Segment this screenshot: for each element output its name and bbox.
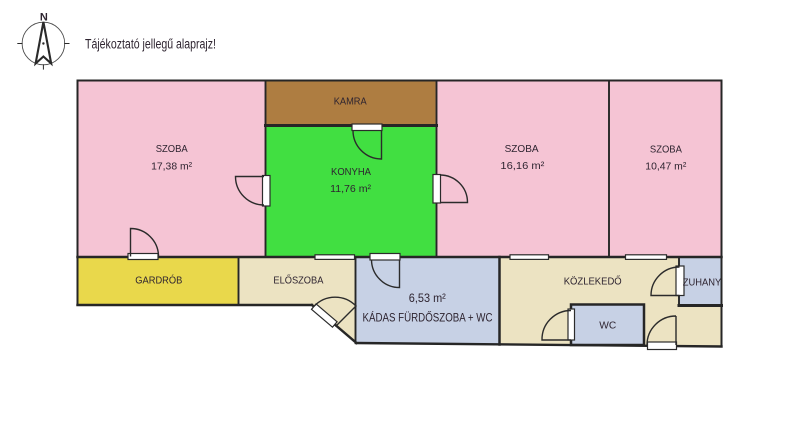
svg-text:11,76 m²: 11,76 m² <box>330 183 371 195</box>
svg-text:KÁDAS FÜRDŐSZOBA + WC: KÁDAS FÜRDŐSZOBA + WC <box>363 310 493 324</box>
svg-text:KAMRA: KAMRA <box>334 95 367 107</box>
svg-text:16,16 m²: 16,16 m² <box>500 160 545 172</box>
svg-text:N: N <box>40 11 48 23</box>
svg-text:KONYHA: KONYHA <box>331 166 371 178</box>
svg-text:ZUHANY: ZUHANY <box>683 277 722 289</box>
svg-text:KÖZLEKEDŐ: KÖZLEKEDŐ <box>564 274 622 288</box>
svg-text:GARDRÓB: GARDRÓB <box>135 274 182 287</box>
svg-text:17,38 m²: 17,38 m² <box>151 160 192 172</box>
svg-text:10,47 m²: 10,47 m² <box>645 160 686 172</box>
svg-text:SZOBA: SZOBA <box>156 143 188 155</box>
svg-text:Tájékoztató jellegű alaprajz!: Tájékoztató jellegű alaprajz! <box>85 36 216 51</box>
svg-text:ELŐSZOBA: ELŐSZOBA <box>273 273 323 287</box>
svg-text:WC: WC <box>599 320 616 332</box>
svg-text:6,53 m²: 6,53 m² <box>409 291 446 305</box>
svg-text:SZOBA: SZOBA <box>650 143 682 155</box>
svg-text:SZOBA: SZOBA <box>505 143 539 155</box>
